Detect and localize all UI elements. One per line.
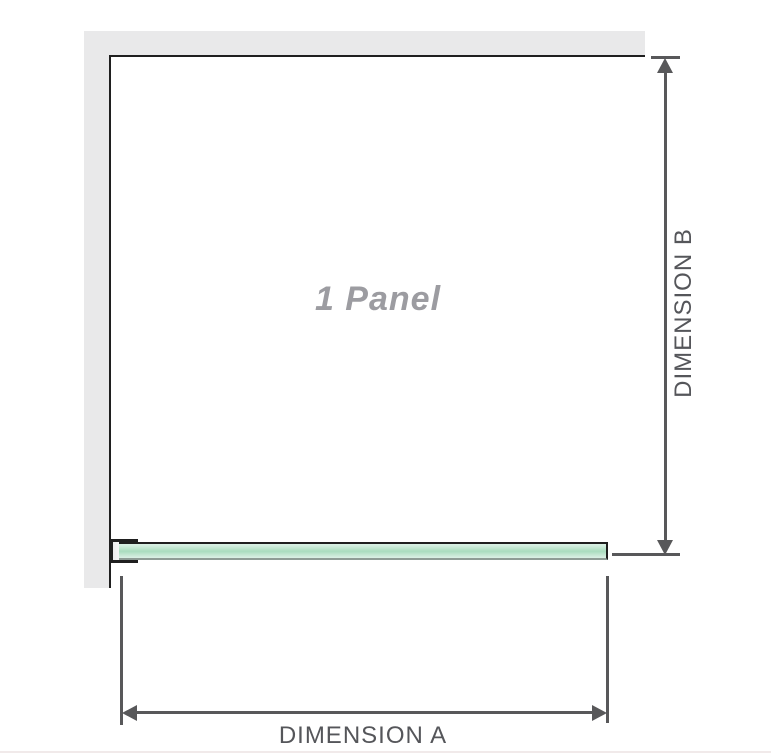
panel-area: 1 Panel (111, 57, 645, 542)
wall-top (84, 31, 645, 56)
dimension-a-label: DIMENSION A (163, 722, 563, 750)
panel-diagram: 1 Panel DIMENSION B DIMENSION A (0, 0, 771, 755)
wall-left (84, 31, 109, 588)
dimension-b-label: DIMENSION B (670, 213, 696, 413)
arrow-right-icon (592, 705, 607, 721)
dimension-a-extension-right (606, 576, 609, 723)
arrow-down-icon (657, 540, 673, 555)
dimension-a-line (134, 711, 596, 714)
glass-panel-bar (119, 542, 608, 560)
dimension-b-line (664, 70, 667, 540)
arrow-up-icon (657, 58, 673, 73)
dimension-a-extension-left (120, 576, 123, 725)
panel-label: 1 Panel (315, 280, 441, 319)
bottom-divider (0, 751, 771, 753)
arrow-left-icon (122, 705, 137, 721)
